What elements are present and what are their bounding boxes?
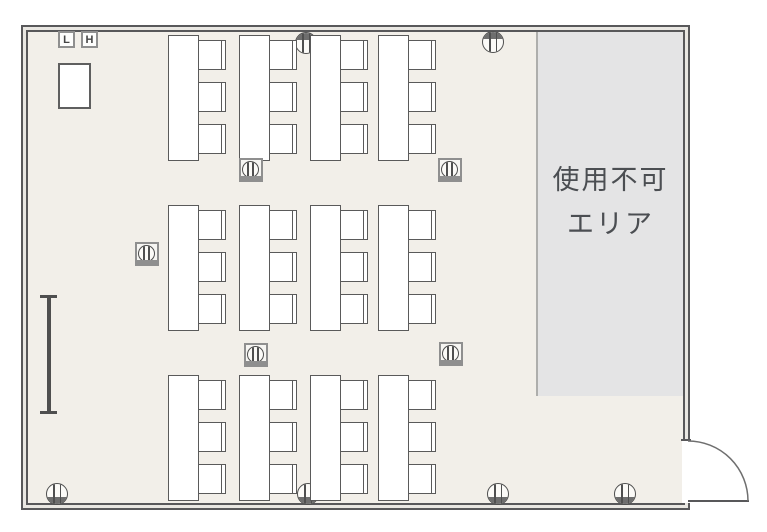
chair xyxy=(198,124,226,154)
outlet-line xyxy=(143,246,145,261)
chair xyxy=(198,252,226,282)
outlet-shade xyxy=(46,497,68,505)
wall-outlet-symbol xyxy=(482,31,504,53)
outlet-line xyxy=(252,162,254,177)
wall-outlet-symbol xyxy=(46,483,68,505)
chair xyxy=(269,380,297,410)
floor-plan: 使用不可 エリア L H xyxy=(0,0,767,532)
outlet-line xyxy=(446,162,448,177)
outlet-shade xyxy=(482,31,504,39)
outlet-shade xyxy=(440,360,462,365)
chair xyxy=(408,294,436,324)
wall-outlet-symbol xyxy=(487,483,509,505)
chair xyxy=(198,422,226,452)
unusable-area-label-line1: 使用不可 xyxy=(553,158,669,202)
chair xyxy=(408,252,436,282)
chair xyxy=(269,124,297,154)
outlet-line xyxy=(489,32,491,52)
chair xyxy=(198,294,226,324)
chair xyxy=(340,380,368,410)
chair xyxy=(269,294,297,324)
chair xyxy=(269,422,297,452)
chair xyxy=(340,464,368,494)
chair xyxy=(340,422,368,452)
chair xyxy=(269,82,297,112)
table xyxy=(310,205,341,331)
chair xyxy=(340,252,368,282)
floor-outlet-symbol xyxy=(239,158,263,182)
table xyxy=(378,375,409,501)
outlet-circle xyxy=(247,346,264,363)
outlet-line xyxy=(53,484,55,504)
table xyxy=(239,205,270,331)
floor-outlet-symbol xyxy=(135,242,159,266)
outlet-line xyxy=(304,484,306,504)
unusable-area-label-line2: エリア xyxy=(567,202,654,246)
outlet-line xyxy=(252,347,254,362)
table xyxy=(378,205,409,331)
outlet-circle xyxy=(138,245,155,262)
outlet-shade xyxy=(240,176,262,181)
chair xyxy=(198,464,226,494)
floor-outlet-symbol xyxy=(244,343,268,367)
outlet-circle xyxy=(442,345,459,362)
floor-outlet-symbol xyxy=(439,342,463,366)
door-swing-arc-icon xyxy=(687,440,750,503)
outlet-line xyxy=(628,484,630,504)
table xyxy=(168,205,199,331)
outlet-line xyxy=(247,162,249,177)
lectern xyxy=(58,63,91,109)
outlet-line xyxy=(451,162,453,177)
chair xyxy=(340,124,368,154)
switch-h: H xyxy=(81,31,98,48)
chair xyxy=(408,380,436,410)
table xyxy=(310,375,341,501)
table xyxy=(168,375,199,501)
chair xyxy=(408,210,436,240)
table xyxy=(239,35,270,161)
table xyxy=(310,35,341,161)
outlet-line xyxy=(621,484,623,504)
whiteboard xyxy=(40,295,57,414)
whiteboard-line xyxy=(47,298,51,411)
outlet-line xyxy=(447,346,449,361)
outlet-line xyxy=(60,484,62,504)
outlet-shade xyxy=(614,497,636,505)
switch-l: L xyxy=(58,31,75,48)
chair xyxy=(198,380,226,410)
outlet-line xyxy=(494,484,496,504)
chair xyxy=(408,82,436,112)
chair xyxy=(340,40,368,70)
outlet-shade xyxy=(245,361,267,366)
table xyxy=(378,35,409,161)
outlet-circle xyxy=(441,161,458,178)
chair xyxy=(198,40,226,70)
outlet-circle xyxy=(242,161,259,178)
outlet-line xyxy=(257,347,259,362)
outlet-line xyxy=(501,484,503,504)
chair xyxy=(408,124,436,154)
chair xyxy=(340,210,368,240)
chair xyxy=(269,252,297,282)
chair xyxy=(269,40,297,70)
unusable-area: 使用不可 エリア xyxy=(536,32,683,396)
outlet-shade xyxy=(487,497,509,505)
outlet-line xyxy=(302,33,304,53)
chair xyxy=(408,422,436,452)
outlet-line xyxy=(148,246,150,261)
chair xyxy=(408,464,436,494)
table xyxy=(239,375,270,501)
chair xyxy=(198,210,226,240)
chair xyxy=(408,40,436,70)
chair xyxy=(269,464,297,494)
outlet-shade xyxy=(439,176,461,181)
chair xyxy=(340,294,368,324)
chair xyxy=(198,82,226,112)
chair xyxy=(269,210,297,240)
table xyxy=(168,35,199,161)
chair xyxy=(340,82,368,112)
outlet-shade xyxy=(136,260,158,265)
wall-outlet-symbol xyxy=(614,483,636,505)
outlet-line xyxy=(496,32,498,52)
outlet-line xyxy=(452,346,454,361)
floor-outlet-symbol xyxy=(438,158,462,182)
